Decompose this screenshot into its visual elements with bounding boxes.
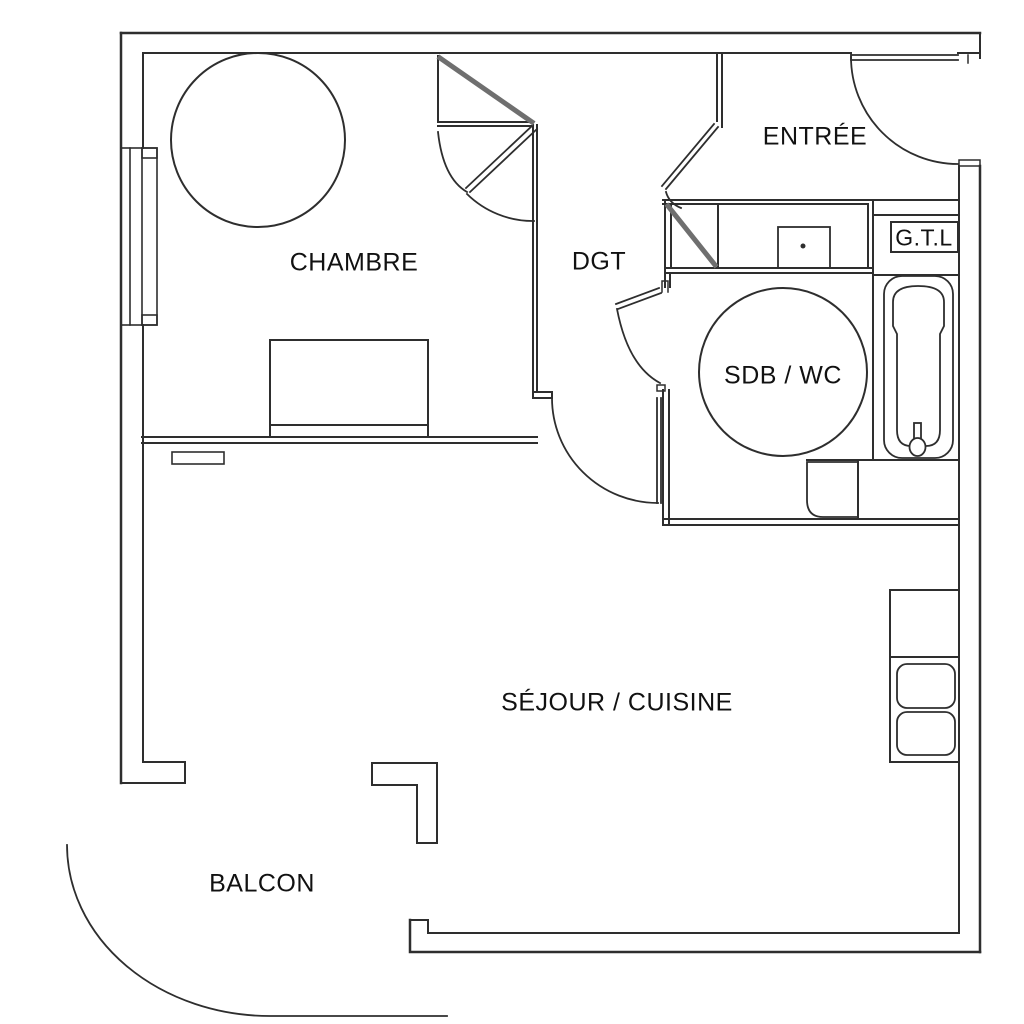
bed: [270, 340, 428, 437]
closet-chambre: [438, 56, 533, 126]
radiator: [172, 452, 224, 464]
door-dgt-sejour: [552, 398, 661, 503]
turning-circle-chambre: [171, 53, 345, 227]
room-label-chambre: CHAMBRE: [290, 249, 419, 278]
kitchen-counter: [890, 590, 959, 762]
door-sdb: [616, 288, 661, 383]
exterior-walls: [121, 33, 980, 952]
closet-entree: [668, 206, 715, 265]
room-label-entree: ENTRÉE: [763, 123, 867, 152]
room-label-dgt: DGT: [572, 248, 626, 277]
room-label-balcon: BALCON: [209, 870, 315, 899]
floor-plan-drawing: [0, 0, 1024, 1024]
door-dgt-entree: [662, 124, 718, 208]
room-label-sejour-cuisine: SÉJOUR / CUISINE: [501, 689, 733, 718]
floor-plan: CHAMBRE DGT ENTRÉE SDB / WC G.T.L SÉJOUR…: [0, 0, 1024, 1024]
room-label-gtl: G.T.L: [895, 225, 952, 252]
toilet: [807, 462, 858, 517]
wall-return-sejour: [372, 763, 437, 843]
room-label-sdb-wc: SDB / WC: [724, 362, 842, 391]
bathtub: [884, 276, 953, 458]
kitchen-sink: [897, 664, 955, 755]
washbasin: [778, 227, 830, 268]
door-chambre-closet: [438, 125, 537, 221]
window: [121, 148, 157, 325]
